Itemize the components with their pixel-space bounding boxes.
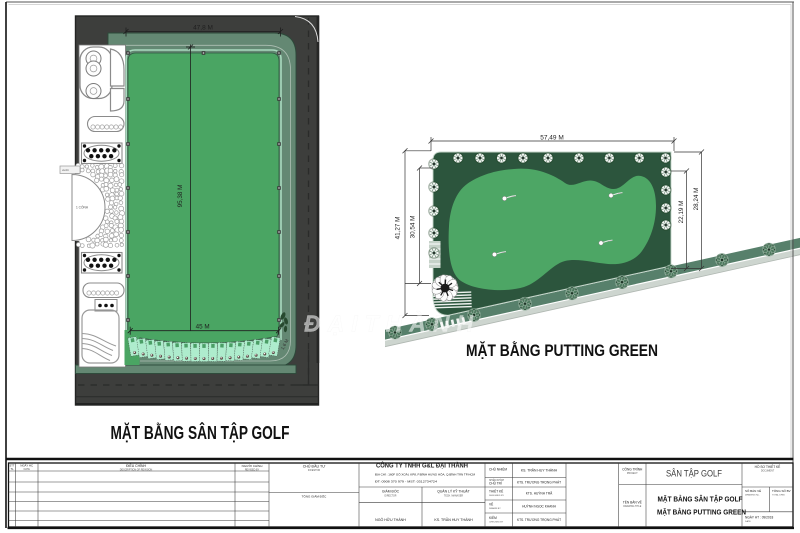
svg-text:SỐ BẢN VẼ: SỐ BẢN VẼ	[745, 488, 761, 493]
svg-text:30,54 M: 30,54 M	[410, 216, 417, 239]
svg-text:28,24 M: 28,24 M	[693, 188, 700, 211]
svg-text:KIỂM: KIỂM	[489, 515, 497, 520]
svg-text:MẶT BẰNG SÂN TẬP GOLF: MẶT BẰNG SÂN TẬP GOLF	[111, 422, 290, 443]
svg-text:41,27 M: 41,27 M	[395, 217, 402, 240]
svg-text:DATE: DATE	[24, 468, 31, 471]
svg-text:NGƯỜI CHỈNH: NGƯỜI CHỈNH	[242, 463, 263, 468]
svg-text:45 M: 45 M	[196, 324, 210, 331]
svg-text:DIRECTOR: DIRECTOR	[385, 495, 397, 497]
svg-text:DESIGNED BY: DESIGNED BY	[489, 495, 504, 497]
svg-text:95,38 M: 95,38 M	[177, 185, 184, 208]
svg-text:ĐẠITHÀNH: ĐẠITHÀNH	[304, 310, 480, 337]
svg-text:CÔNG TY TNHH G&L ĐẠI THÀNH: CÔNG TY TNHH G&L ĐẠI THÀNH	[376, 462, 468, 470]
svg-text:SÂN TẬP GOLF: SÂN TẬP GOLF	[666, 469, 722, 480]
svg-text:57,49 M: 57,49 M	[540, 134, 564, 141]
svg-text:CÔNG TRÌNH: CÔNG TRÌNH	[622, 467, 643, 472]
svg-text:THIẾT KẾ: THIẾT KẾ	[489, 489, 503, 494]
svg-text:vườn: vườn	[62, 168, 69, 172]
svg-text:ĐT: 0908 370 979 - MST: 0312: ĐT: 0908 370 979 - MST: 0312734724	[375, 480, 438, 484]
svg-text:DRAWING No.: DRAWING No.	[745, 494, 760, 497]
svg-text:TOTAL DRW.: TOTAL DRW.	[772, 494, 785, 497]
svg-text:VẼ: VẼ	[489, 502, 493, 507]
svg-text:47,8 M: 47,8 M	[193, 25, 213, 32]
svg-text:1 CỎNH: 1 CỎNH	[76, 205, 89, 210]
svg-text:CHỦ NHIỆM: CHỦ NHIỆM	[489, 467, 507, 472]
svg-text:MẶT BẰNG PUTTING GREEN: MẶT BẰNG PUTTING GREEN	[657, 508, 746, 517]
svg-text:NGÀY HT : 09/2018: NGÀY HT : 09/2018	[745, 516, 773, 520]
svg-text:HUỲNH NGỌC KHANH: HUỲNH NGỌC KHANH	[522, 505, 557, 509]
svg-text:DRAWN BY: DRAWN BY	[489, 507, 501, 510]
svg-text:DOCUMENT: DOCUMENT	[761, 471, 775, 473]
svg-text:CHECKED BY: CHECKED BY	[489, 522, 504, 524]
svg-text:CHỦ ĐẦU TƯ: CHỦ ĐẦU TƯ	[303, 464, 326, 469]
svg-text:KTS. HUỲNH TRÃ: KTS. HUỲNH TRÃ	[526, 491, 553, 496]
svg-text:MẶT BẰNG SÂN TẬP GOLF: MẶT BẰNG SÂN TẬP GOLF	[658, 495, 743, 504]
svg-text:PROJECT: PROJECT	[627, 473, 638, 475]
svg-text:TECH. MANAGER: TECH. MANAGER	[444, 494, 463, 497]
svg-text:ĐIỀU CHỈNH: ĐIỀU CHỈNH	[126, 463, 146, 468]
svg-text:DESCRIPTION OF REVISION: DESCRIPTION OF REVISION	[120, 468, 153, 471]
svg-text:TỔNG GIÁM ĐỐC: TỔNG GIÁM ĐỐC	[302, 494, 328, 499]
svg-text:REVISED BY: REVISED BY	[245, 468, 260, 471]
svg-text:KTS. TRƯƠNG TRỌNG PHÁT: KTS. TRƯƠNG TRỌNG PHÁT	[517, 481, 561, 485]
svg-text:CHỦ TRÌ: CHỦ TRÌ	[489, 481, 502, 486]
svg-text:HỒ SƠ THIẾT KẾ: HỒ SƠ THIẾT KẾ	[755, 464, 781, 469]
svg-text:INVESTOR: INVESTOR	[308, 469, 320, 472]
svg-text:DRAWING TITLE: DRAWING TITLE	[623, 505, 641, 508]
svg-text:GIÁM ĐỐC: GIÁM ĐỐC	[382, 489, 400, 494]
svg-text:KS. TRẦN HUY THÀNH: KS. TRẦN HUY THÀNH	[521, 469, 558, 473]
svg-text:NGÔ HỮU THÀNH: NGÔ HỮU THÀNH	[375, 517, 406, 522]
svg-text:TỔNG SỐ BV: TỔNG SỐ BV	[772, 488, 791, 493]
svg-text:TÊN BẢN VẼ: TÊN BẢN VẼ	[623, 500, 642, 505]
svg-text:QUẢN LÝ KỸ THUẬT: QUẢN LÝ KỸ THUẬT	[437, 489, 470, 494]
svg-text:22,19 M: 22,19 M	[678, 201, 685, 224]
svg-text:KS. TRẦN HUY THÀNH: KS. TRẦN HUY THÀNH	[434, 518, 473, 522]
svg-text:DATE: DATE	[745, 520, 751, 523]
svg-text:KTS. TRƯƠNG TRỌNG PHÁT: KTS. TRƯƠNG TRỌNG PHÁT	[517, 518, 561, 522]
svg-text:MẶT BẰNG PUTTING GREEN: MẶT BẰNG PUTTING GREEN	[466, 341, 658, 360]
